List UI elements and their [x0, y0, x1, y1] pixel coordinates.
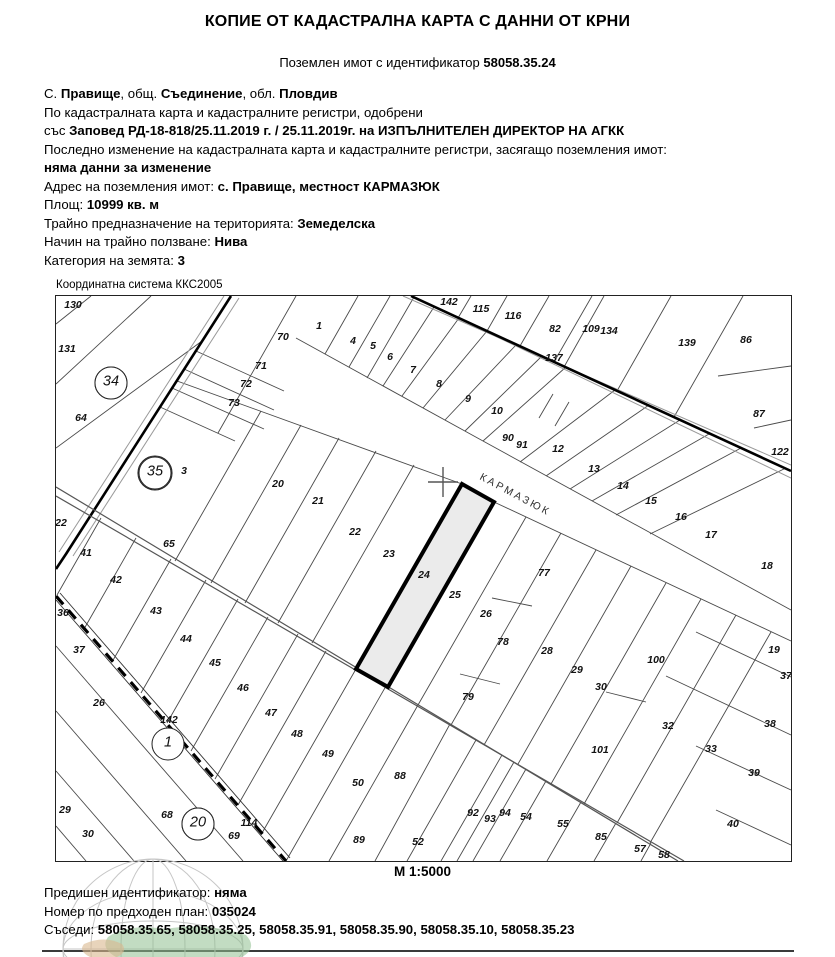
- parcel-label-78: 78: [497, 636, 509, 648]
- parcel-label-79: 79: [462, 691, 474, 703]
- parcel-label-93: 93: [484, 813, 496, 825]
- parcel-label-4: 4: [350, 335, 356, 347]
- parcel-label-17: 17: [705, 529, 717, 541]
- footer-info-block: Предишен идентификатор: нямаНомер по пре…: [44, 884, 814, 940]
- parcel-label-87: 87: [753, 408, 765, 420]
- parcel-identifier-line: Поземлен имот с идентификатор 58058.35.2…: [0, 55, 835, 70]
- parcel-label-58: 58: [658, 849, 670, 861]
- parcel-label-131: 131: [58, 343, 76, 355]
- parcel-label-137: 137: [545, 352, 563, 364]
- parcel-label-65: 65: [163, 538, 175, 550]
- parcel-label-88: 88: [394, 770, 406, 782]
- parcel-label-73: 73: [228, 397, 240, 409]
- parcel-label-1: 1: [316, 320, 322, 332]
- parcel-label-142: 142: [440, 296, 458, 308]
- cadastral-document-page: КОПИЕ ОТ КАДАСТРАЛНА КАРТА С ДАННИ ОТ КР…: [0, 0, 835, 957]
- parcel-label-55: 55: [557, 818, 569, 830]
- property-info-block: С. Правище, общ. Съединение, обл. Пловди…: [44, 85, 804, 270]
- parcel-label-48: 48: [291, 728, 303, 740]
- parcel-label-37: 37: [780, 670, 792, 682]
- parcel-label-50: 50: [352, 777, 364, 789]
- parcel-label-134: 134: [600, 325, 618, 337]
- parcel-label-25: 25: [449, 589, 461, 601]
- parcel-label-3: 3: [181, 465, 187, 477]
- parcel-label-82: 82: [549, 323, 561, 335]
- parcel-label-64: 64: [75, 412, 87, 424]
- parcel-label-15: 15: [645, 495, 657, 507]
- parcel-label-46: 46: [237, 682, 249, 694]
- parcel-label-91: 91: [516, 439, 528, 451]
- parcel-label-85: 85: [595, 831, 607, 843]
- parcel-label-89: 89: [353, 834, 365, 846]
- parcel-label-77: 77: [538, 567, 550, 579]
- parcel-label-47: 47: [265, 707, 277, 719]
- parcel-label-26: 26: [93, 697, 105, 709]
- parcel-label-57: 57: [634, 843, 646, 855]
- parcel-label-49: 49: [322, 748, 334, 760]
- map-point-20: 20: [182, 808, 215, 841]
- parcel-label-37: 37: [73, 644, 85, 656]
- parcel-label-45: 45: [209, 657, 221, 669]
- map-point-34: 34: [95, 367, 128, 400]
- parcel-label-86: 86: [740, 334, 752, 346]
- parcel-label-21: 21: [312, 495, 324, 507]
- document-title: КОПИЕ ОТ КАДАСТРАЛНА КАРТА С ДАННИ ОТ КР…: [0, 13, 835, 31]
- parcel-label-130: 130: [64, 299, 82, 311]
- parcel-label-42: 42: [110, 574, 122, 586]
- parcel-label-30: 30: [595, 681, 607, 693]
- parcel-label-18: 18: [761, 560, 773, 572]
- parcel-label-16: 16: [675, 511, 687, 523]
- parcel-label-22: 22: [55, 517, 67, 529]
- parcel-label-41: 41: [80, 547, 92, 559]
- parcel-label-29: 29: [59, 804, 71, 816]
- coordinate-system-label: Координатна система ККС2005: [56, 279, 223, 291]
- parcel-label-12: 12: [552, 443, 564, 455]
- map-point-1: 1: [152, 728, 185, 761]
- parcel-label-92: 92: [467, 807, 479, 819]
- parcel-label-20: 20: [272, 478, 284, 490]
- parcel-label-7: 7: [410, 364, 416, 376]
- parcel-label-39: 39: [748, 767, 760, 779]
- parcel-label-142: 142: [160, 714, 178, 726]
- parcel-label-100: 100: [647, 654, 665, 666]
- parcel-label-69: 69: [228, 830, 240, 842]
- parcel-number-labels: 1301313464353707172731456789109091142115…: [56, 296, 791, 861]
- parcel-label-10: 10: [491, 405, 503, 417]
- parcel-label-19: 19: [768, 644, 780, 656]
- parcel-label-139: 139: [678, 337, 696, 349]
- parcel-label-70: 70: [277, 331, 289, 343]
- parcel-label-109: 109: [582, 323, 600, 335]
- parcel-label-71: 71: [255, 360, 267, 372]
- parcel-label-14: 14: [617, 480, 629, 492]
- parcel-label-9: 9: [465, 393, 471, 405]
- map-point-35: 35: [139, 457, 172, 490]
- parcel-label-114: 114: [241, 817, 258, 829]
- parcel-label-8: 8: [436, 378, 442, 390]
- parcel-label-29: 29: [571, 664, 583, 676]
- parcel-label-24: 24: [418, 569, 430, 581]
- parcel-label-38: 38: [764, 718, 776, 730]
- parcel-label-26: 26: [480, 608, 492, 620]
- parcel-label-28: 28: [541, 645, 553, 657]
- parcel-label-72: 72: [240, 378, 252, 390]
- parcel-label-5: 5: [370, 340, 376, 352]
- parcel-label-6: 6: [387, 351, 393, 363]
- parcel-label-52: 52: [412, 836, 424, 848]
- parcel-label-116: 116: [505, 310, 522, 322]
- cadastral-map: КАРМАЗЮК 1301313464353707172731456789109…: [55, 295, 792, 862]
- parcel-label-30: 30: [82, 828, 94, 840]
- parcel-label-44: 44: [180, 633, 192, 645]
- parcel-label-101: 101: [591, 744, 609, 756]
- parcel-label-40: 40: [727, 818, 739, 830]
- parcel-label-36: 36: [57, 607, 69, 619]
- parcel-label-13: 13: [588, 463, 600, 475]
- parcel-label-122: 122: [771, 446, 789, 458]
- parcel-label-68: 68: [161, 809, 173, 821]
- parcel-label-94: 94: [499, 807, 511, 819]
- parcel-label-90: 90: [502, 432, 514, 444]
- parcel-label-43: 43: [150, 605, 162, 617]
- parcel-label-33: 33: [705, 743, 717, 755]
- parcel-label-115: 115: [473, 303, 490, 315]
- parcel-label-32: 32: [662, 720, 674, 732]
- parcel-label-54: 54: [520, 811, 532, 823]
- parcel-label-22: 22: [349, 526, 361, 538]
- parcel-label-23: 23: [383, 548, 395, 560]
